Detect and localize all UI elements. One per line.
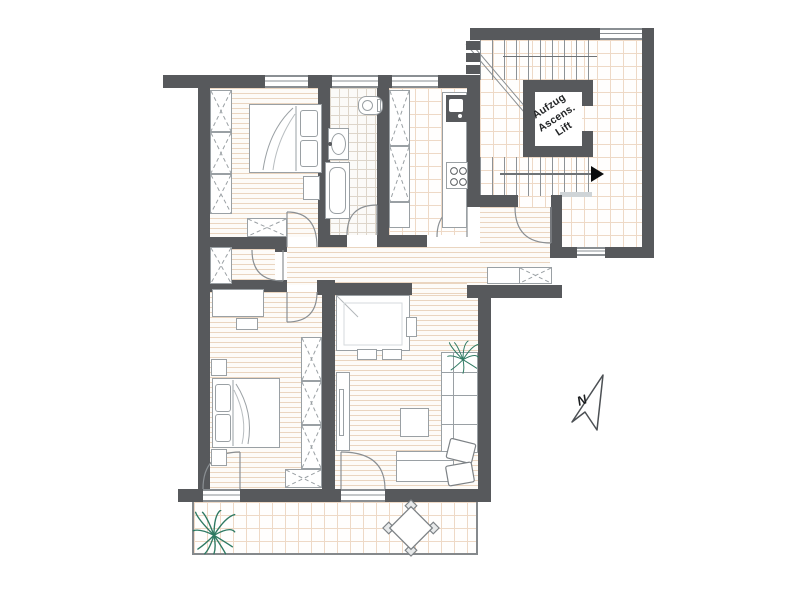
bedroom1-wardrobe-1 xyxy=(210,90,232,132)
bedroom1-wardrobe-3 xyxy=(210,174,232,214)
kitchen-sink-bowl xyxy=(449,99,463,112)
dining-chair-1 xyxy=(357,349,377,360)
stairwell-wall-top xyxy=(470,28,600,40)
kitchen-sink-faucet xyxy=(458,114,462,118)
wall-top-2 xyxy=(308,75,332,88)
wall-hall-living xyxy=(467,285,562,298)
balcony-table-set xyxy=(379,497,443,559)
closet-room-wardrobe xyxy=(210,247,232,284)
wall-entrance-right xyxy=(551,195,562,207)
stairwell-window-bottom xyxy=(577,247,605,256)
living-entry-floor xyxy=(412,283,467,295)
bathroom-sink-faucet xyxy=(328,142,332,146)
hall-closet-cabinet-1 xyxy=(389,90,410,146)
stairwell-dashed-wall-3 xyxy=(466,65,480,74)
window-top-3 xyxy=(392,75,438,88)
bedroom1-bed-blanket xyxy=(249,104,322,173)
stairs-lower-flight xyxy=(480,157,598,196)
stairs-direction-arrow-icon xyxy=(591,166,604,182)
coffee-table xyxy=(400,408,429,437)
wall-bottom-1 xyxy=(178,489,203,502)
bedroom2-nightstand-top xyxy=(211,359,227,376)
tv-screen xyxy=(339,389,344,436)
north-arrow: N xyxy=(562,366,608,440)
dining-chair-3 xyxy=(406,317,417,337)
stairwell-wall-right xyxy=(642,28,654,258)
balcony-door-threshold-bedroom2 xyxy=(203,489,240,502)
stairwell-dashed-wall-2 xyxy=(466,53,480,62)
bedroom2-chair xyxy=(236,318,258,330)
wall-left xyxy=(198,88,210,502)
closet-room-door xyxy=(252,250,283,281)
elevator-wall-right-upper xyxy=(582,80,593,106)
hall-sideboard-right xyxy=(519,267,552,284)
hall-closet-cabinet-2 xyxy=(389,146,410,202)
wall-top-3 xyxy=(378,75,392,88)
wall-top-1 xyxy=(163,75,265,88)
wall-bottom-2 xyxy=(240,489,341,502)
bathtub-basin xyxy=(329,167,346,214)
window-top-1 xyxy=(265,75,308,88)
wall-kitchen-south xyxy=(377,235,427,247)
wall-entrance xyxy=(467,195,518,207)
floor-plan: Aufzug Ascens. Lift xyxy=(0,0,800,600)
bedroom2-desk xyxy=(212,289,264,317)
wall-hall-bottom-right xyxy=(562,247,577,258)
entrance-door xyxy=(515,207,551,243)
bathroom-door xyxy=(347,205,377,235)
wall-living-north xyxy=(335,283,412,295)
wall-bedroom2-living xyxy=(322,283,335,489)
stairs-walk-line-lower xyxy=(500,173,592,175)
stairwell-dashed-wall-1 xyxy=(466,41,480,50)
hall-sideboard-left xyxy=(487,267,520,284)
stairwell-wall-bottom-right xyxy=(605,247,654,258)
bedroom2-wardrobe-2 xyxy=(301,381,322,425)
living-balcony-door xyxy=(341,452,385,489)
sofa-cushions xyxy=(442,438,480,490)
wall-hall-right xyxy=(550,207,562,258)
living-room-plant-icon xyxy=(446,340,480,376)
window-top-2 xyxy=(332,75,378,88)
stairwell-window-top xyxy=(600,28,642,40)
bedroom2-wardrobe-3 xyxy=(301,425,322,469)
dining-table-detail xyxy=(336,295,410,351)
bedroom2-wardrobe-1 xyxy=(301,337,322,381)
sofa-cushion-line-2 xyxy=(442,395,477,396)
toilet-tank xyxy=(377,99,381,112)
bedroom1-wardrobe-2 xyxy=(210,132,232,174)
toilet-bowl xyxy=(362,100,373,111)
bedroom2-bed-blanket xyxy=(212,378,280,448)
bedroom1-wardrobe-south xyxy=(247,218,287,237)
balcony-plant-icon xyxy=(189,510,239,556)
bedroom2-door xyxy=(287,292,317,322)
bedroom2-nightstand-bottom xyxy=(211,449,227,466)
wall-bathroom-south xyxy=(330,235,347,247)
kitchen-stove xyxy=(446,162,468,189)
wall-kitchen-right xyxy=(467,75,480,195)
bedroom1-door xyxy=(287,212,317,247)
dining-chair-2 xyxy=(382,349,402,360)
hall-closet-cabinet-3 xyxy=(389,202,410,228)
bathroom-sink-basin xyxy=(331,133,346,155)
stairs-landing-edge xyxy=(560,192,592,197)
bedroom1-nightstand xyxy=(303,176,320,200)
sofa-cushion-line-3 xyxy=(442,424,477,425)
bedroom2-wardrobe-corner xyxy=(285,469,322,488)
